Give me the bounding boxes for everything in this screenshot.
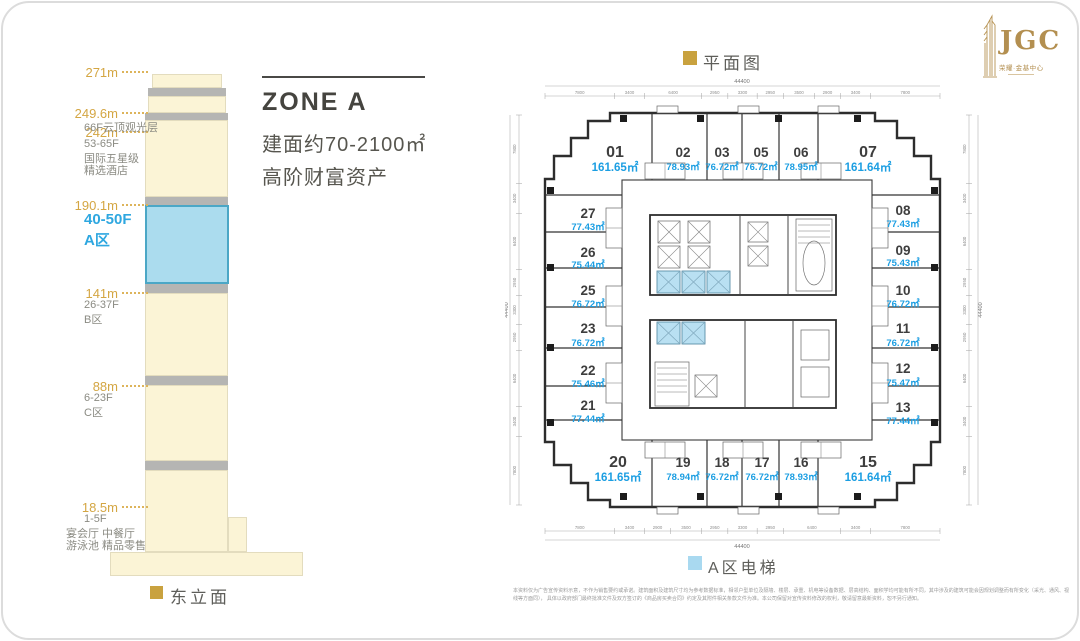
leader-dots (122, 204, 148, 206)
unit-number: 18 (714, 455, 730, 470)
dim-label: 3400 (962, 193, 967, 203)
dim-label: 2900 (823, 90, 833, 95)
disclaimer-line: 具体以政府部门最终批准文件及双方签订的《商品房买卖合同》约定及其附件相关条款文件… (547, 596, 922, 602)
dim-label: 3400 (625, 90, 635, 95)
unit-area: 77.44㎡ (571, 413, 605, 425)
dim-label: 3500 (681, 525, 691, 530)
dim-label: 6400 (962, 373, 967, 383)
unit-area: 77.43㎡ (886, 218, 920, 230)
logo-subtitle: 荣耀·金基中心 (999, 62, 1044, 72)
elevation-band (145, 284, 228, 293)
unit-number: 05 (753, 145, 769, 160)
zone-a-label: A区 (84, 229, 110, 250)
unit-area: 161.64㎡ (845, 470, 892, 484)
dim-total: 44400 (505, 302, 510, 318)
unit-number: 17 (754, 455, 769, 470)
unit-number: 23 (580, 321, 596, 336)
dim-label: 7800 (962, 465, 967, 475)
panel-rule (262, 76, 425, 78)
unit-number: 13 (895, 400, 911, 415)
elevation-block-podium (110, 552, 303, 576)
zone-label: 6-23F (84, 392, 113, 404)
zone-label: 26-37F (84, 299, 119, 311)
unit-area: 161.65㎡ (595, 470, 642, 484)
unit-area: 76.72㎡ (705, 161, 739, 173)
unit-number: 15 (859, 454, 877, 471)
zone-label: 53-65F (84, 138, 119, 150)
panel-tagline: 高阶财富资产 (262, 161, 388, 190)
dim-label: 7800 (962, 144, 967, 154)
dim-label: 7800 (575, 525, 585, 530)
dim-label: 2950 (962, 332, 967, 342)
dim-strip-left: 780034006400295033002950640034007800 (512, 115, 522, 505)
dim-label: 2950 (710, 90, 720, 95)
core-lower (650, 320, 836, 408)
unit-number: 21 (580, 398, 596, 413)
elevation-caption: 东立面 (170, 583, 230, 608)
dim-label: 3300 (738, 525, 748, 530)
disclaimer: 本资料仅为广告宣传资料示意，不作为销售要约或承诺。建筑面积及建筑尺寸均为参考数据… (513, 587, 1069, 603)
unit-number: 08 (895, 203, 911, 218)
floor-plan-title: 平面图 (703, 49, 763, 74)
unit-area: 76.72㎡ (886, 298, 920, 310)
dim-label: 2900 (653, 525, 663, 530)
logo-text: JGC (1000, 26, 1061, 56)
unit-area: 75.46㎡ (571, 378, 605, 390)
elevation-band (145, 461, 228, 470)
unit-number: 02 (675, 145, 690, 160)
unit-area: 161.65㎡ (592, 160, 639, 174)
leader-dots (122, 71, 148, 73)
dim-label: 2950 (962, 277, 967, 287)
dim-label: 3400 (851, 90, 861, 95)
leader-dots (122, 112, 148, 114)
unit-number: 11 (896, 321, 911, 336)
unit-number: 26 (580, 245, 596, 260)
dim-label: 3400 (962, 416, 967, 426)
dim-label: 7800 (901, 525, 911, 530)
dim-label: 3400 (625, 525, 635, 530)
elevation-block-zone-c (145, 385, 228, 461)
dim-label: 6400 (512, 236, 517, 246)
elevation-band (145, 197, 228, 205)
dim-label: 2950 (766, 90, 776, 95)
dim-label: 7800 (512, 465, 517, 475)
unit-number: 03 (714, 145, 730, 160)
unit-area: 77.43㎡ (571, 221, 605, 233)
dim-label: 7800 (575, 90, 585, 95)
stair (796, 219, 832, 291)
dim-label: 3300 (738, 90, 748, 95)
dim-label: 7800 (901, 90, 911, 95)
dim-strip-bottom: 7800340029003500295033002950640034007800 (545, 525, 940, 534)
dim-label: 2950 (710, 525, 720, 530)
legend-square-icon (688, 556, 702, 570)
dim-label: 3400 (851, 525, 861, 530)
unit-number: 16 (793, 455, 809, 470)
dim-label: 3400 (512, 193, 517, 203)
elevation-block (148, 96, 226, 113)
tower-icon (979, 12, 1001, 78)
unit-number: 12 (895, 361, 910, 376)
panel-area-range: 建面约70-2100㎡ (262, 128, 426, 157)
dim-total: 44400 (978, 302, 984, 318)
stair (655, 362, 689, 406)
elevation-band (145, 376, 228, 385)
dim-label: 6400 (807, 525, 817, 530)
unit-number: 10 (895, 283, 910, 298)
unit-number: 20 (609, 454, 627, 471)
unit-number: 27 (580, 206, 595, 221)
zone-a-label: 40-50F (84, 211, 132, 228)
dim-total: 44400 (734, 79, 750, 85)
unit-area: 75.43㎡ (886, 257, 920, 269)
unit-number: 06 (793, 145, 809, 160)
elevation-block-zone-a (145, 205, 229, 284)
unit-area: 75.47㎡ (886, 377, 920, 389)
unit-area: 76.72㎡ (571, 337, 605, 349)
dim-strip-top: 7800340064002950330029503500290034007800 (545, 90, 940, 99)
unit-area: 75.44㎡ (571, 259, 605, 271)
legend-label: A区电梯 (708, 554, 779, 578)
unit-area: 78.94㎡ (666, 471, 700, 483)
unit-area: 78.95㎡ (784, 161, 818, 173)
unit-number: 09 (895, 243, 910, 258)
unit-area: 76.72㎡ (745, 471, 779, 483)
dim-label: 3300 (962, 305, 967, 315)
unit-number: 25 (580, 283, 596, 298)
unit-area: 77.44㎡ (886, 415, 920, 427)
gold-square-icon (150, 586, 163, 599)
gold-square-icon (683, 51, 697, 65)
unit-area: 76.72㎡ (705, 471, 739, 483)
dim-label: 2950 (766, 525, 776, 530)
zone-label: 1-5F (84, 513, 107, 525)
elevation-block-step (228, 517, 247, 552)
unit-area: 78.93㎡ (784, 471, 818, 483)
zone-label: C区 (84, 404, 103, 420)
unit-area: 161.64㎡ (845, 160, 892, 174)
zone-label: 精选酒店 (84, 162, 128, 178)
elevation-band (148, 88, 226, 96)
leader-dots (122, 292, 148, 294)
elevation-block-base (145, 470, 228, 552)
dim-label: 6400 (962, 236, 967, 246)
zone-label: 66F云顶观光层 (84, 119, 158, 135)
logo-rule (1008, 74, 1034, 75)
unit-area: 76.72㎡ (886, 337, 920, 349)
dim-label: 6400 (668, 90, 678, 95)
unit-number: 22 (580, 363, 595, 378)
unit-area: 76.72㎡ (744, 161, 778, 173)
elevation-block (152, 74, 222, 88)
panel-title: ZONE A (262, 88, 368, 117)
leader-dots (122, 385, 148, 387)
dim-label: 7800 (512, 144, 517, 154)
unit-number: 19 (675, 455, 690, 470)
dim-label: 3400 (512, 416, 517, 426)
height-marker: 271m (40, 65, 118, 80)
unit-number: 07 (859, 144, 877, 161)
zone-label: B区 (84, 311, 102, 327)
elevation-block-zone-b (145, 293, 228, 376)
dim-label: 2950 (512, 332, 517, 342)
floor-plan-svg: 01 161.65㎡ 02 78.93㎡ 03 76.72㎡ 05 76.72㎡… (505, 75, 985, 550)
zone-a-elevators (657, 271, 730, 293)
unit-area: 78.93㎡ (666, 161, 700, 173)
dim-label: 3300 (512, 305, 517, 315)
leader-dots (122, 506, 148, 508)
dim-label: 2950 (512, 277, 517, 287)
dim-label: 3500 (794, 90, 804, 95)
unit-area: 76.72㎡ (571, 298, 605, 310)
core-upper (650, 215, 836, 295)
dim-label: 6400 (512, 373, 517, 383)
dim-total: 44400 (734, 544, 750, 550)
brochure-page: 271m 249.6m 242m 190.1m 141m 88m 18.5m 6… (0, 0, 1080, 641)
dim-strip-right: 780034006400295033002950640034007800 (962, 115, 972, 505)
unit-number: 01 (606, 144, 624, 161)
zone-label: 游泳池 精品零售 (66, 537, 146, 553)
